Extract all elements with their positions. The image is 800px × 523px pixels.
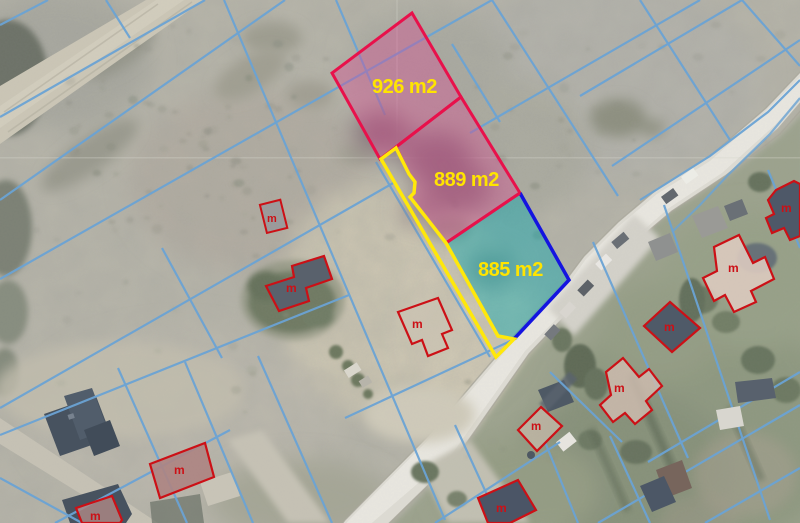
svg-text:m: m [267,213,277,225]
svg-text:889 m2: 889 m2 [434,169,499,191]
svg-text:885 m2: 885 m2 [478,259,543,281]
svg-text:m: m [728,261,739,275]
svg-text:m: m [614,381,625,395]
svg-text:m: m [781,201,792,215]
svg-text:926 m2: 926 m2 [372,76,437,98]
svg-text:m: m [496,501,507,515]
svg-text:m: m [286,281,297,295]
svg-text:m: m [531,421,541,433]
svg-text:m: m [664,320,675,334]
svg-text:m: m [412,317,423,331]
svg-text:m: m [90,509,101,523]
svg-text:m: m [174,463,185,477]
